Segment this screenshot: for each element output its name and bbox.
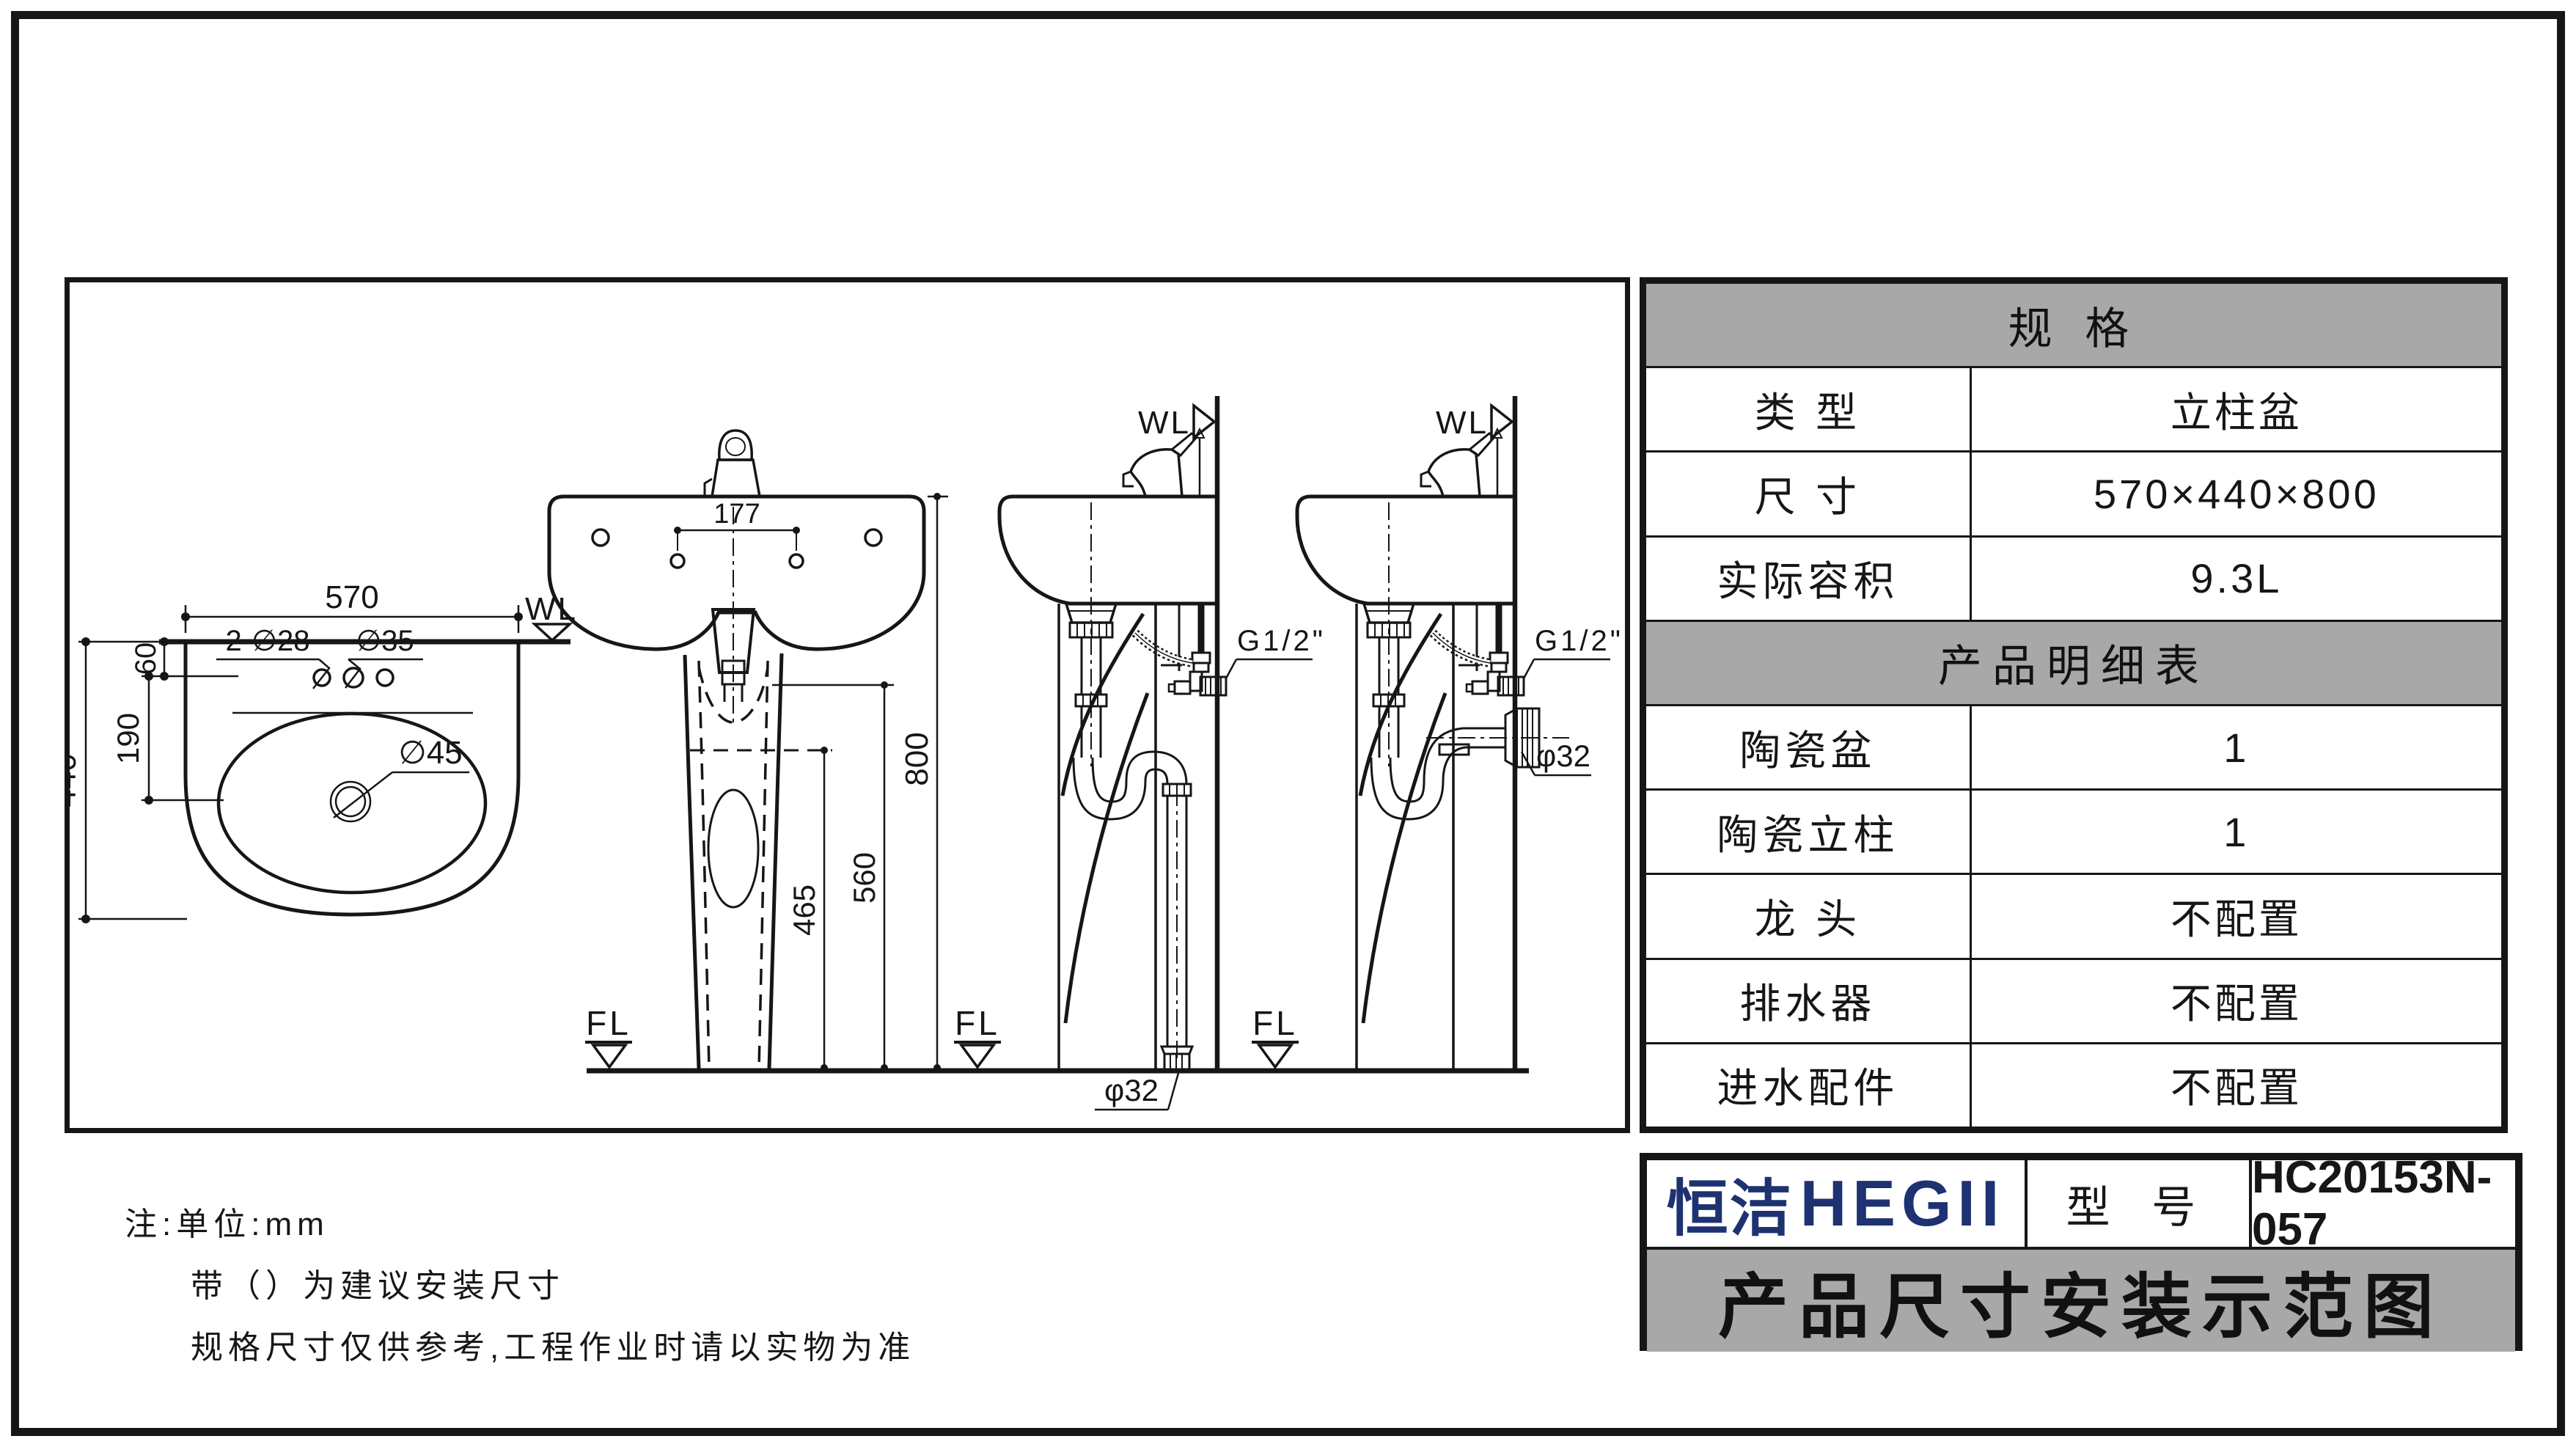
- table-row-capacity: 实际容积 9.3L: [1646, 538, 2501, 622]
- front-floor-line-label: FL: [586, 1004, 631, 1042]
- spec-table: 规 格 类 型 立柱盆 尺 寸 570×440×800 实际容积 9.3L 产品…: [1640, 277, 2508, 1133]
- drain-label: ∅45: [398, 735, 462, 771]
- details-header-text: 产品明细表: [1938, 631, 2209, 695]
- dim-60-label: 60: [130, 642, 162, 675]
- table-row-faucet: 龙 头 不配置: [1646, 875, 2501, 959]
- table-section-header-details: 产品明细表: [1646, 622, 2501, 706]
- row-value: 立柱盆: [1972, 368, 2501, 450]
- top-wall-line-label: WL: [525, 591, 578, 627]
- row-label: 陶瓷立柱: [1646, 791, 1972, 873]
- model-number: HC20153N-057: [2252, 1160, 2515, 1247]
- side-view-floor-drain: [954, 396, 1326, 1071]
- row-label: 实际容积: [1646, 538, 1972, 620]
- row-value: 9.3L: [1972, 538, 2501, 620]
- row-label: 尺 寸: [1646, 453, 1972, 535]
- dim-440-label: 440: [70, 753, 83, 807]
- row-value: 1: [1972, 706, 2501, 788]
- front-view: 177 FL: [549, 431, 1529, 1071]
- faucet-holes-label: 2-∅28: [226, 625, 310, 657]
- floor-drain-diameter-label: φ32: [1104, 1073, 1159, 1107]
- dim-560-label: 560: [847, 852, 881, 904]
- model-label: 型 号: [2028, 1160, 2252, 1247]
- dim-177-label: 177: [713, 499, 760, 530]
- dim-190-label: 190: [111, 713, 145, 764]
- row-value: 不配置: [1972, 875, 2501, 957]
- table-row-size: 尺 寸 570×440×800: [1646, 453, 2501, 537]
- table-row-inlet-fittings: 进水配件 不配置: [1646, 1044, 2501, 1127]
- sheet-title: 产品尺寸安装示范图: [1647, 1250, 2515, 1352]
- row-value: 不配置: [1972, 960, 2501, 1042]
- drawing-panel: WL: [65, 277, 1630, 1133]
- note-line-3: 规格尺寸仅供参考,工程作业时请以实物为准: [125, 1317, 915, 1379]
- wall-drain-diameter-label: φ32: [1536, 739, 1590, 773]
- row-label: 排水器: [1646, 960, 1972, 1042]
- row-value: 1: [1972, 791, 2501, 873]
- row-label: 进水配件: [1646, 1044, 1972, 1127]
- row-value: 不配置: [1972, 1044, 2501, 1127]
- note-line-1: 注:单位:mm: [125, 1194, 915, 1256]
- spec-header-text: 规 格: [2008, 293, 2140, 357]
- technical-drawing: WL: [70, 282, 1625, 1128]
- notes: 注:单位:mm 带（）为建议安装尺寸 规格尺寸仅供参考,工程作业时请以实物为准: [125, 1194, 915, 1379]
- row-label: 龙 头: [1646, 875, 1972, 957]
- table-row-ceramic-basin: 陶瓷盆 1: [1646, 706, 2501, 791]
- row-label: 类 型: [1646, 368, 1972, 450]
- table-row-type: 类 型 立柱盆: [1646, 368, 2501, 453]
- row-value: 570×440×800: [1972, 453, 2501, 535]
- table-row-ceramic-pedestal: 陶瓷立柱 1: [1646, 791, 2501, 875]
- center-hole-label: ∅35: [356, 625, 414, 657]
- installation-sheet: WL: [0, 0, 2576, 1447]
- brand-logo: 恒洁 HEGII: [1647, 1160, 2028, 1247]
- side-view-wall-drain-extras: φ32: [1424, 708, 1591, 781]
- dim-570-label: 570: [325, 579, 378, 615]
- top-view: WL 570 2-∅28 ∅: [70, 579, 578, 923]
- table-row-drainer: 排水器 不配置: [1646, 960, 2501, 1044]
- dim-465-label: 465: [787, 884, 821, 936]
- title-block: 恒洁 HEGII 型 号 HC20153N-057 产品尺寸安装示范图: [1640, 1153, 2522, 1351]
- row-label: 陶瓷盆: [1646, 706, 1972, 788]
- table-section-header-spec: 规 格: [1646, 284, 2501, 368]
- note-line-2: 带（）为建议安装尺寸: [125, 1256, 915, 1317]
- brand-logo-en: HEGII: [1800, 1166, 2006, 1241]
- brand-logo-cn: 恒洁: [1667, 1160, 1793, 1248]
- dim-800-label: 800: [899, 732, 935, 785]
- side-view-wall-drain: [1252, 396, 1623, 1071]
